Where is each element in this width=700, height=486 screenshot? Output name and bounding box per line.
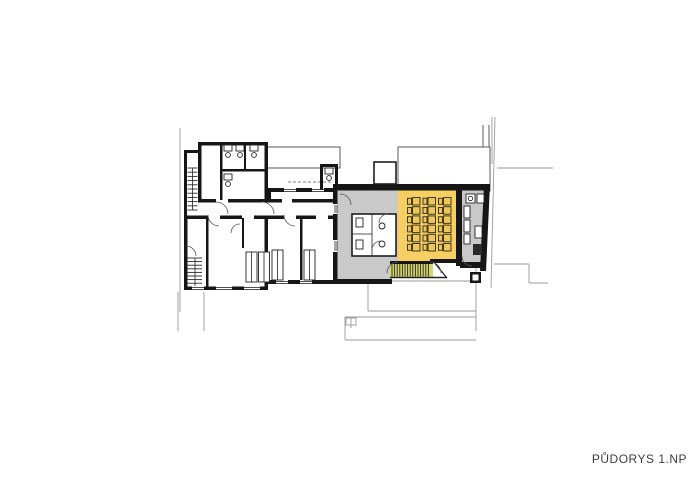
floorplan-canvas xyxy=(0,0,700,486)
hall-wc-core xyxy=(352,214,396,256)
stair-icon-upper xyxy=(188,168,198,210)
stair-icon-lower xyxy=(188,258,203,286)
bench-icon xyxy=(346,318,356,328)
highlighted-room xyxy=(398,190,456,262)
floorplan-page: PŮDORYS 1.NP xyxy=(0,0,700,486)
toilet-icon xyxy=(224,145,389,186)
shelf-icon xyxy=(246,250,315,282)
exterior-stairs-icon xyxy=(390,261,447,278)
shaft-icon xyxy=(470,272,481,283)
exterior-stair-treads xyxy=(392,264,428,277)
drawing-title: PŮDORYS 1.NP xyxy=(592,452,687,466)
